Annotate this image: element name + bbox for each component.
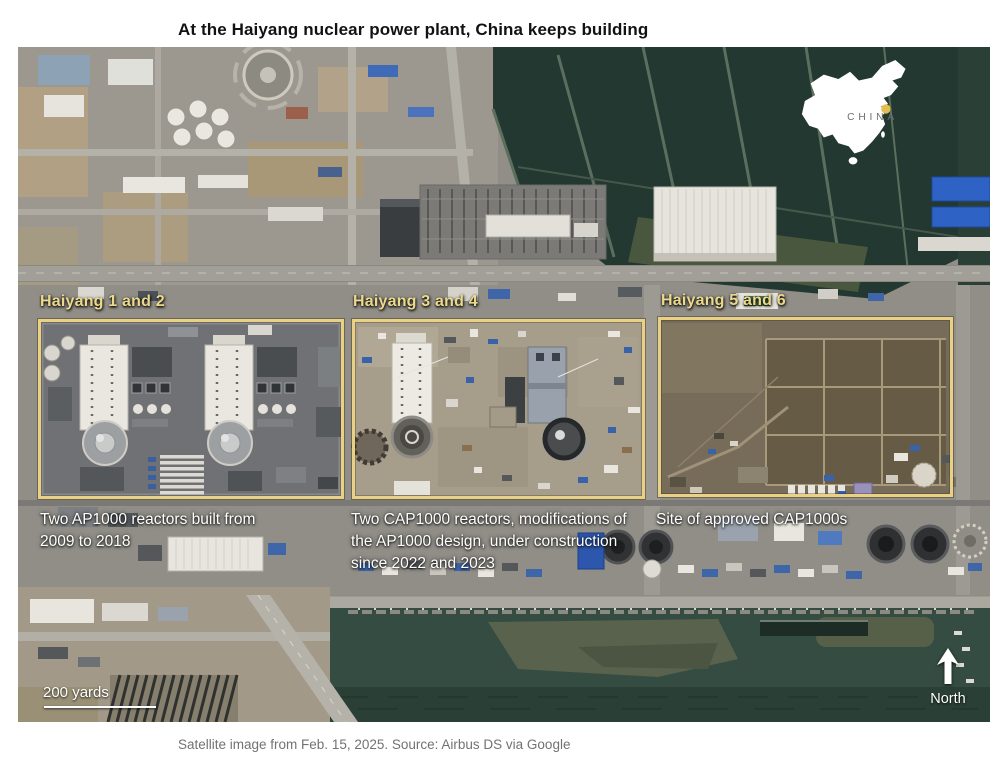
taiwan-island xyxy=(881,131,885,137)
site-caption-haiyang-3-4: Two CAP1000 reactors, modifications of t… xyxy=(351,509,636,575)
north-label: North xyxy=(920,691,976,707)
site-caption-haiyang-1-2: Two AP1000 reactors built from 2009 to 2… xyxy=(40,509,290,553)
graphic: At the Haiyang nuclear power plant, Chin… xyxy=(0,0,1000,776)
hainan-island xyxy=(849,157,858,164)
china-country-label: CHINA xyxy=(847,112,898,123)
page-title: At the Haiyang nuclear power plant, Chin… xyxy=(178,20,648,40)
plant-location-marker-dot xyxy=(881,104,890,113)
north-arrow-icon xyxy=(937,648,959,684)
site-box-haiyang-3-4 xyxy=(352,319,645,499)
source-credit: Satellite image from Feb. 15, 2025. Sour… xyxy=(178,737,570,752)
site-label-haiyang-3-4: Haiyang 3 and 4 xyxy=(353,293,478,311)
site-box-haiyang-1-2 xyxy=(38,319,344,499)
compass: North xyxy=(920,648,976,707)
site-caption-haiyang-5-6: Site of approved CAP1000s xyxy=(656,509,966,531)
site-label-haiyang-5-6: Haiyang 5 and 6 xyxy=(661,292,786,310)
china-map-inset: CHINA xyxy=(799,52,945,182)
china-outline xyxy=(802,60,906,153)
scale-bar-label: 200 yards xyxy=(43,684,109,701)
scale-bar xyxy=(44,706,156,708)
site-label-haiyang-1-2: Haiyang 1 and 2 xyxy=(40,293,165,311)
site-box-haiyang-5-6 xyxy=(658,317,953,497)
